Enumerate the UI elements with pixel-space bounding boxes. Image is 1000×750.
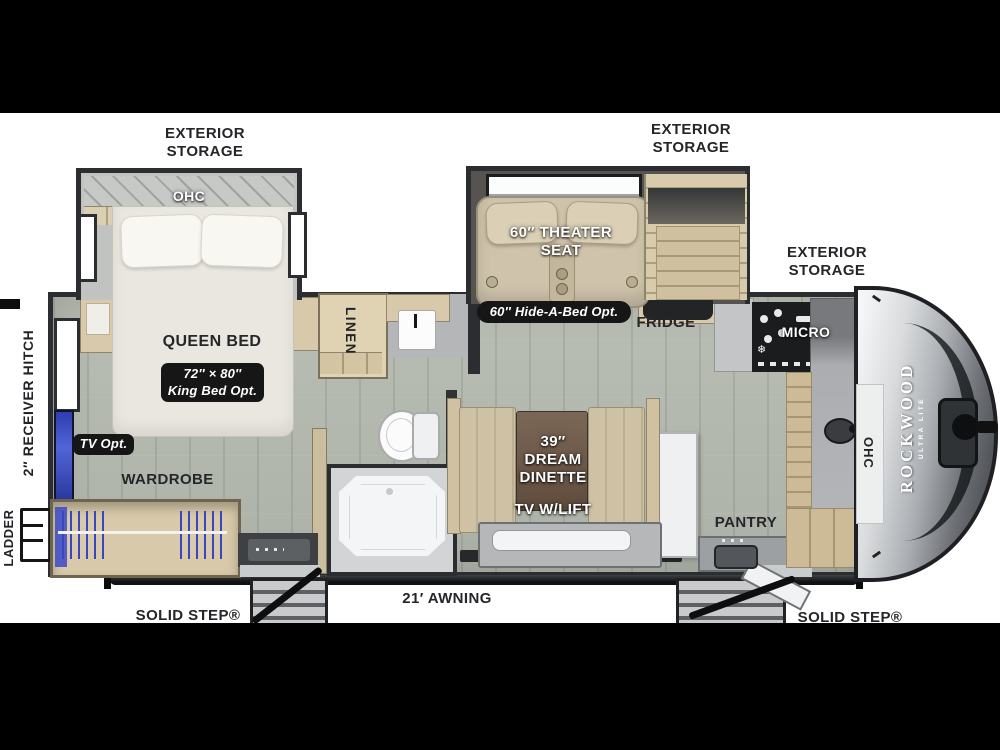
shower-drain [386,488,393,495]
nightstand-right [292,297,320,351]
ladder-label: LADDER [0,499,17,577]
theater-label-line2: SEAT [541,242,582,259]
galley-faucet-dots [722,539,746,542]
micro-label: MICRO [770,324,842,341]
cupholder-2 [556,283,568,295]
hitch-coupler [976,421,998,433]
queen-bed-label-line1: QUEEN BED [163,333,262,350]
bath-sink [398,310,436,350]
bedroom-ohc-label: OHC [149,188,229,205]
cabinet-panel [656,226,740,300]
solid-step-left-line1: SOLID STEP® [136,607,241,624]
pantry-label: PANTRY [696,514,796,532]
shower [327,464,457,576]
cupholder-1 [556,268,568,280]
wardrobe-rod [58,531,227,534]
top-letterbox-bar [0,0,1000,113]
entry-left-treadmarks [256,548,284,551]
front-ohc-label: OHC [856,426,882,480]
shower-pan-inner [349,484,437,550]
armrest-cup-right [626,276,638,288]
tv-lift-label: TV W/LIFT [493,501,613,519]
brand-name: ROCKWOOD [897,338,917,518]
dinette-back-right [646,398,660,534]
wardrobe-label: WARDROBE [100,471,235,489]
bedroom-window-right [288,212,307,278]
tv-option-pill: TV Opt. [73,434,134,455]
freezer-icon: ❄ [757,344,769,356]
hitch-jack-knob [952,414,978,440]
pillow-right [200,214,284,269]
exterior-storage-label-theater: EXTERIOR STORAGE [616,121,766,156]
cabinet-shadow-top [648,188,745,224]
lift-tv [492,530,631,551]
receiver-hitch-label: 2″ RECEIVER HITCH [15,298,41,508]
hide-a-bed-pill: 60″ Hide-A-Bed Opt. [477,301,631,323]
pillow-left [120,214,204,269]
hangers-left [62,511,104,559]
rear-window [54,318,80,412]
kitchen-end-panel [714,298,754,372]
armrest-cup-left [486,276,498,288]
hangers-right [180,511,222,559]
bedroom-tv [54,410,74,502]
awning-label: 21′ AWNING [372,590,522,608]
dinette-label-line1: 39″ [540,433,565,450]
floorplan-canvas: EXTERIOR STORAGE EXTERIOR STORAGE EXTERI… [0,0,1000,750]
bedroom-window-left [78,214,97,282]
fridge-label: FRIDGE [625,314,707,332]
dinette-label-line3: DINETTE [520,469,587,486]
exterior-storage-label-bedroom: EXTERIOR STORAGE [130,125,280,160]
bottom-letterbox-bar [0,623,1000,750]
brand-logo: ROCKWOOD ULTRA LITE [897,338,935,518]
king-bed-option-pill: 72″ × 80″ King Bed Opt. [161,363,264,402]
ladder-icon [20,508,52,562]
exterior-storage-label-kitchen: EXTERIOR STORAGE [752,244,902,279]
dinette-label-line2: DREAM [525,451,582,468]
range-vent [758,362,818,366]
theater-label-line1: 60″ THEATER [510,224,612,241]
nightstand-left-top [86,303,110,335]
linen-label: LINEN [339,304,363,358]
toilet-tank [412,412,440,460]
brand-model: ULTRA LITE [918,338,925,518]
galley-sink [714,545,758,569]
bath-faucet [414,314,417,328]
